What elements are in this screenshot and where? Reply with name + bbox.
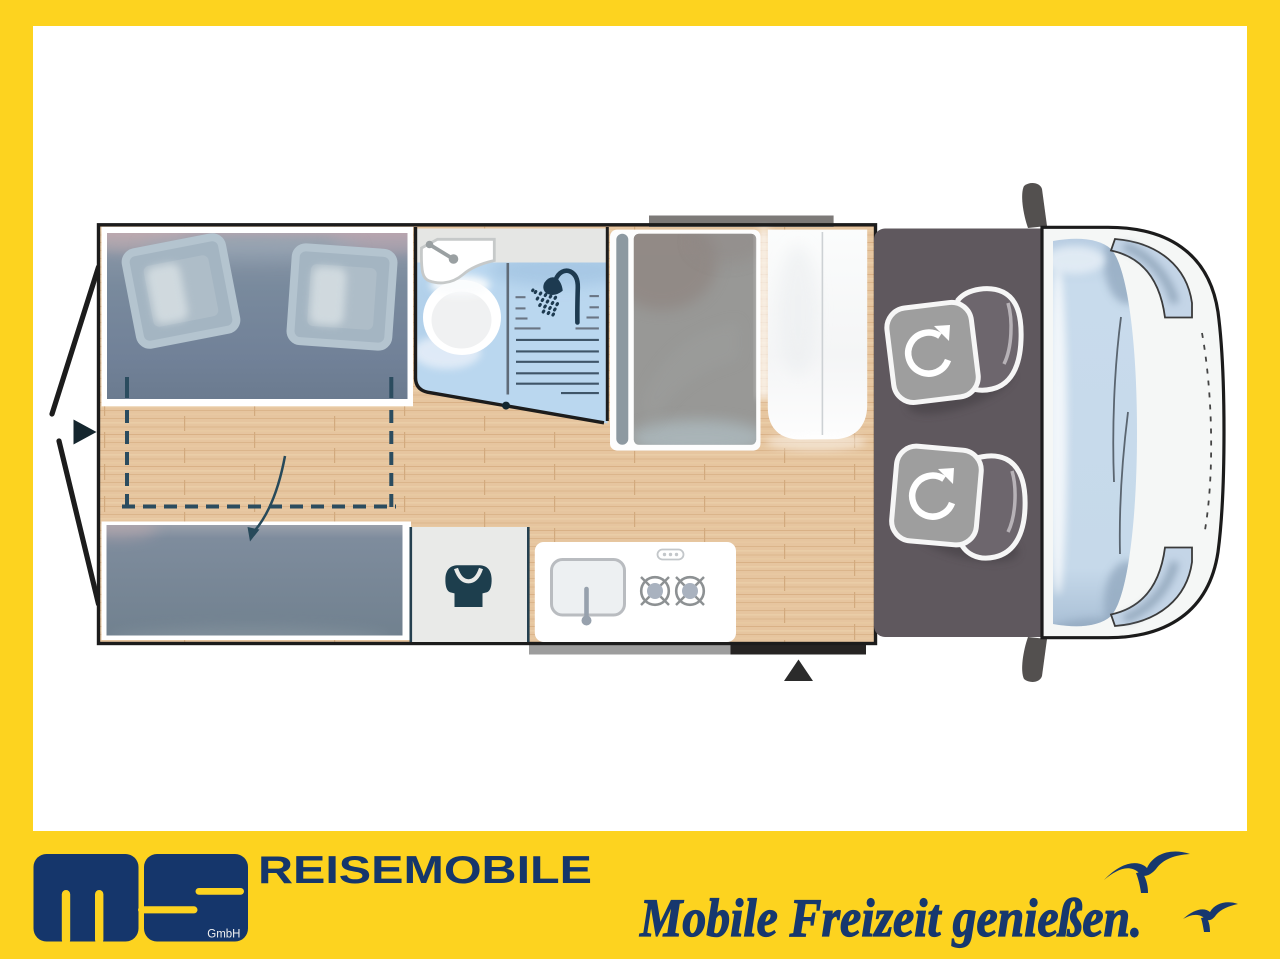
svg-text:Mobile Freizeit genießen.: Mobile Freizeit genießen.	[639, 888, 1142, 948]
svg-text:GmbH: GmbH	[207, 929, 240, 941]
svg-text:REISEMOBILE: REISEMOBILE	[258, 849, 592, 892]
